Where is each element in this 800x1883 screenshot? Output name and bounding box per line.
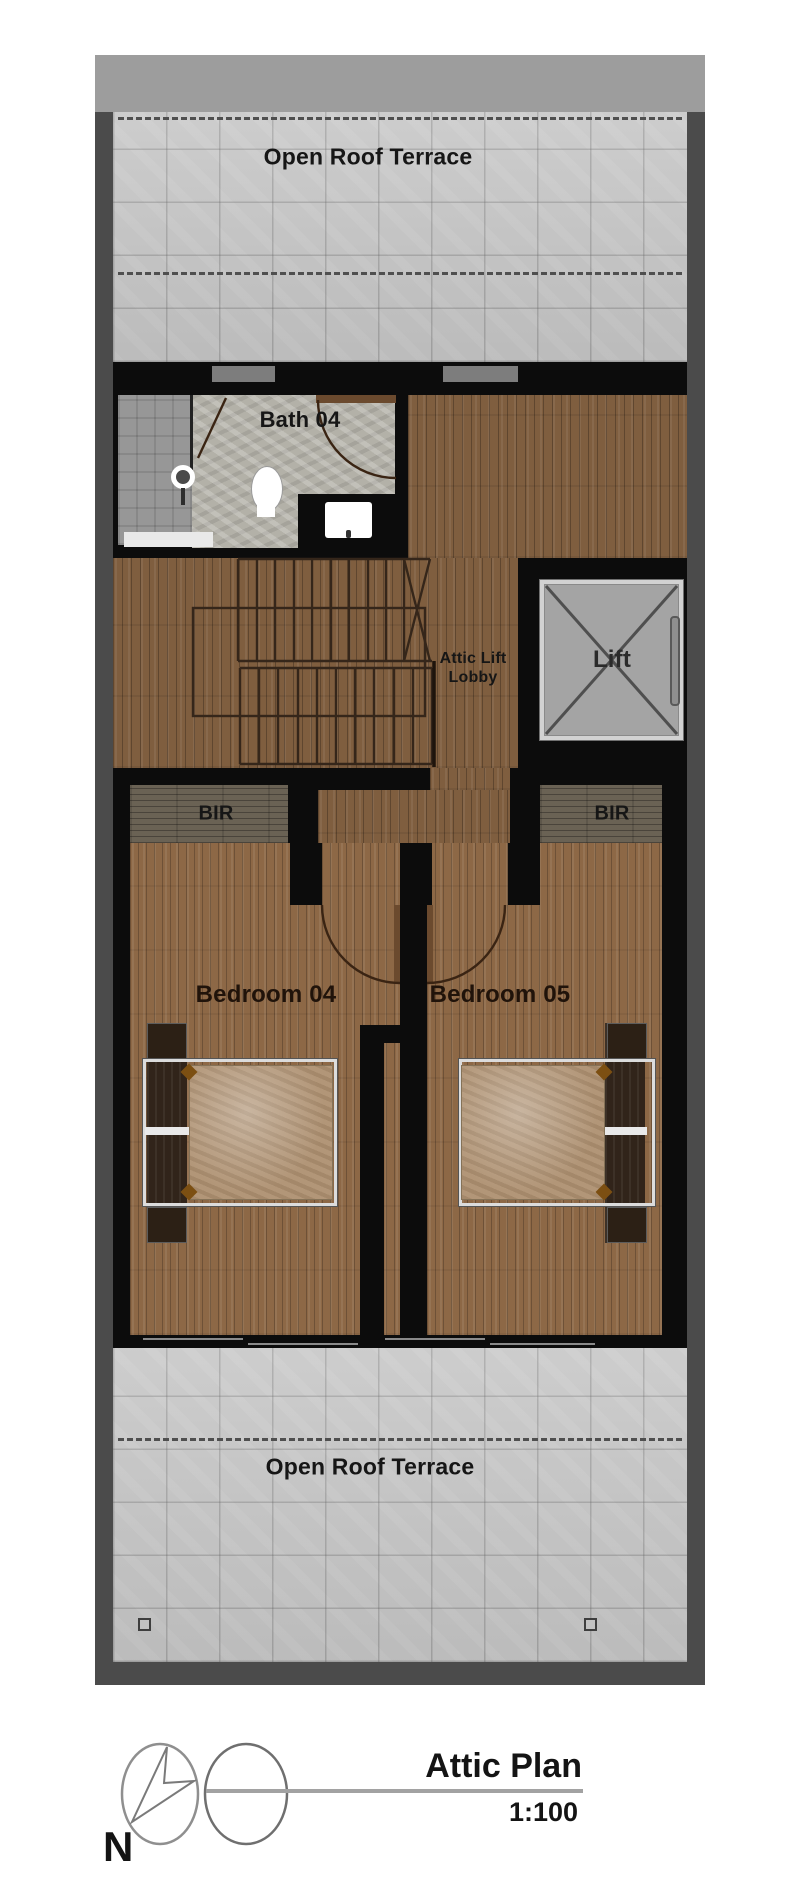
bedroom-05-label: Bedroom 05 bbox=[430, 981, 571, 1009]
terrace-post-left bbox=[138, 1618, 151, 1631]
door-stub-right bbox=[508, 843, 540, 905]
bedroom-04-door-leaf bbox=[394, 905, 400, 983]
sliding-door-line-1 bbox=[143, 1338, 243, 1340]
plan-title: Attic Plan bbox=[425, 1749, 582, 1783]
bed-04-mattress bbox=[189, 1065, 333, 1200]
bath-label: Bath 04 bbox=[260, 407, 341, 433]
door-stub-left bbox=[290, 843, 322, 905]
compass-needle bbox=[132, 1747, 194, 1822]
sliding-door-line-2 bbox=[248, 1343, 358, 1345]
terrace-top-edge-dashed-line bbox=[118, 117, 682, 120]
bir-right-label: BIR bbox=[594, 803, 629, 826]
bed-05-mattress bbox=[461, 1065, 605, 1200]
terrace-post-right bbox=[584, 1618, 597, 1631]
left-outer-wall bbox=[95, 112, 113, 1685]
terrace-bottom-dashed-line bbox=[118, 1438, 682, 1441]
toilet-base bbox=[257, 503, 275, 517]
top-wall-opening-right bbox=[443, 366, 518, 382]
door-stub-center bbox=[400, 843, 432, 905]
center-wall-upper bbox=[400, 905, 427, 1025]
bedroom-04-label: Bedroom 04 bbox=[196, 981, 337, 1009]
bed-04-nightstand-top bbox=[147, 1023, 187, 1059]
lobby-floor-upper bbox=[408, 395, 687, 558]
bedroom-05-door-leaf bbox=[427, 905, 433, 983]
terrace-top-label: Open Roof Terrace bbox=[264, 144, 473, 171]
corridor-floor-a bbox=[430, 768, 510, 790]
right-outer-wall bbox=[687, 112, 705, 1685]
shower-partition bbox=[190, 395, 193, 470]
floor-plan-canvas: Open Roof Terrace Bath 04 Attic Lift Lob… bbox=[0, 0, 800, 1883]
bed-04-nightstand-bottom bbox=[147, 1207, 187, 1243]
bed-04-pillow-divider bbox=[145, 1127, 189, 1135]
bir-left-label: BIR bbox=[198, 803, 233, 826]
center-wall-jog bbox=[360, 1025, 427, 1043]
terrace-top-mid-dashed-line bbox=[118, 272, 682, 275]
bath-door-leaf bbox=[316, 395, 396, 403]
lift-lobby-label-line2: Lobby bbox=[440, 668, 507, 687]
bed-05-pillow-divider bbox=[603, 1127, 647, 1135]
sliding-door-line-3 bbox=[385, 1338, 485, 1340]
shower-bench bbox=[124, 532, 213, 547]
scale-circle bbox=[205, 1744, 287, 1844]
sink-faucet bbox=[346, 530, 351, 538]
plan-scale: 1:100 bbox=[509, 1799, 578, 1826]
shower-stem bbox=[181, 488, 185, 505]
sliding-door-line-4 bbox=[490, 1343, 595, 1345]
bed-05-nightstand-bottom bbox=[607, 1207, 647, 1243]
lift-label: Lift bbox=[593, 646, 631, 674]
shower-head-icon bbox=[171, 465, 195, 489]
bottom-outer-wall bbox=[95, 1662, 705, 1685]
lift-door bbox=[670, 616, 680, 706]
roof-terrace-bottom bbox=[113, 1348, 687, 1662]
center-wall-lower bbox=[360, 1043, 384, 1335]
north-label: N bbox=[103, 1826, 133, 1868]
terrace-bottom-label: Open Roof Terrace bbox=[266, 1454, 475, 1481]
lift-lobby-label-line1: Attic Lift bbox=[440, 649, 507, 668]
compass-circle bbox=[122, 1744, 198, 1844]
top-wall-opening-left bbox=[212, 366, 275, 382]
lift-lobby-label: Attic Lift Lobby bbox=[440, 649, 507, 687]
top-parapet-wall bbox=[95, 55, 705, 115]
bed-05-nightstand-top bbox=[607, 1023, 647, 1059]
